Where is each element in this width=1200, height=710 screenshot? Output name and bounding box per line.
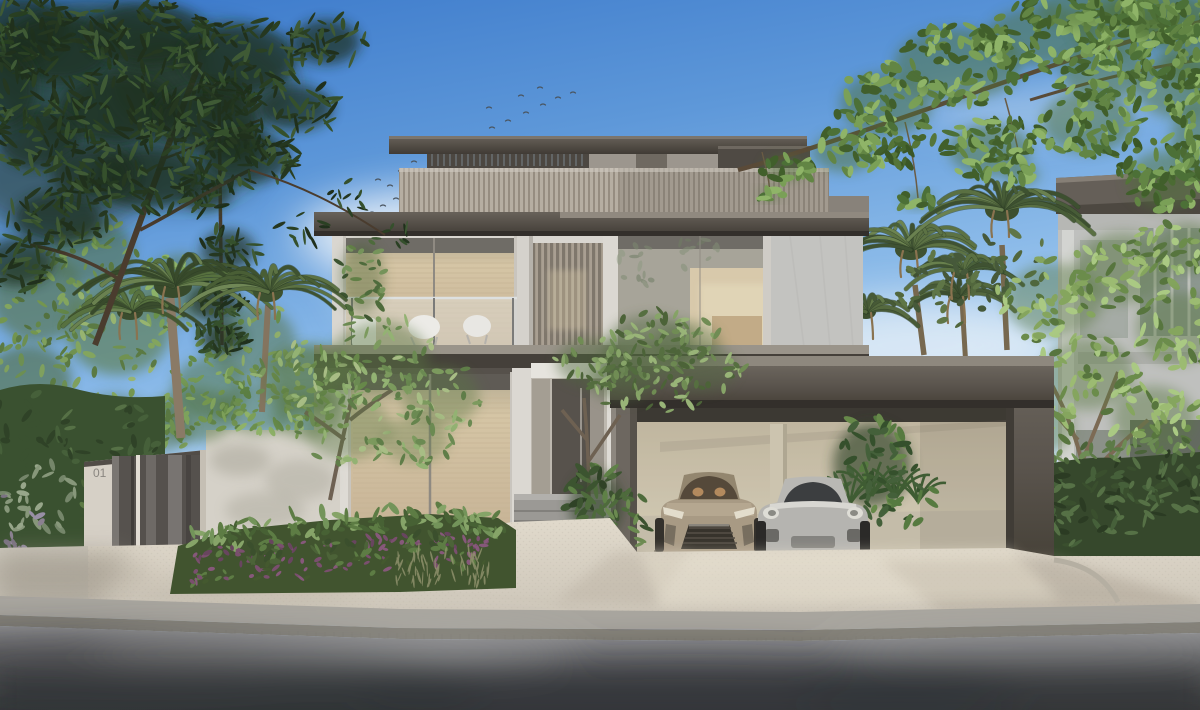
svg-text:01: 01	[93, 466, 107, 480]
